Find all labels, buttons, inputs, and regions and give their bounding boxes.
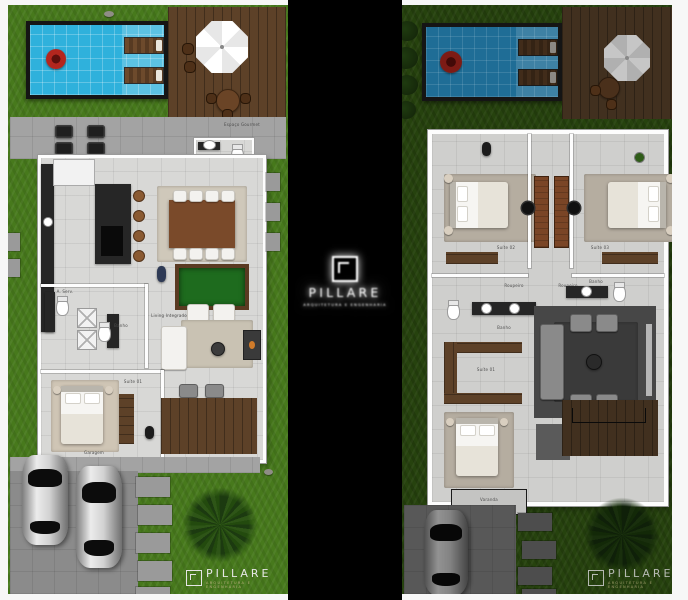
deck-armchair (205, 384, 224, 398)
driveway-paver (518, 567, 552, 585)
office-chair (568, 202, 580, 214)
room-label-banho: Banho (114, 324, 128, 329)
nightstand (666, 174, 672, 183)
room-label-suite2: Suíte 02 (497, 246, 515, 251)
car-shaded (424, 510, 468, 594)
room-label-banho-l: Banho (497, 326, 511, 331)
bed-pillow (648, 206, 659, 222)
garden-rock (264, 469, 273, 475)
toilet (614, 286, 625, 301)
driveway-paver (136, 533, 170, 553)
bush (402, 101, 416, 119)
toilet (57, 300, 68, 315)
suite2-bench (446, 252, 498, 264)
house-interior: Living Integrado A. Serv. Banho (38, 155, 266, 463)
dining-chair (189, 248, 203, 260)
person-figure (145, 426, 154, 439)
island-stool (133, 190, 145, 202)
interior-wall (41, 284, 147, 287)
kitchen-sink (44, 218, 52, 226)
office-chair (522, 202, 534, 214)
dining-chair (173, 248, 187, 260)
interior-wall (145, 284, 148, 368)
tv-panel (646, 324, 652, 396)
person-figure (157, 266, 166, 282)
bed-headboard (660, 182, 666, 228)
interior-wall (528, 134, 531, 268)
pillare-tagline: ARQUITETURA E ENGENHARIA (608, 581, 672, 589)
pillare-logo-icon (588, 570, 604, 586)
deck-chair (184, 61, 196, 73)
tv-armchair (570, 314, 592, 332)
sun-lounger (518, 39, 558, 56)
pool-water (30, 25, 164, 95)
laundry-counter (45, 292, 55, 332)
dining-chair (205, 248, 219, 260)
driveway-paver (518, 513, 552, 531)
toilet (99, 326, 110, 341)
deck-armchair (179, 384, 198, 398)
suite3-bed (608, 182, 666, 228)
room-label-living: Living Integrado (151, 314, 187, 319)
lounge-chair (87, 142, 105, 155)
lavabo-sink (204, 141, 215, 149)
toilet (448, 304, 459, 319)
nightstand (105, 386, 113, 394)
driveway-paver (522, 541, 556, 559)
pillare-logo-icon (186, 570, 202, 586)
bush (402, 47, 418, 69)
ground-floor-plan: Espaço Gourmet Lavabo (8, 5, 288, 594)
potted-plant (634, 152, 645, 163)
car-silver (22, 455, 68, 545)
rear-wood-deck (161, 398, 257, 454)
room-label-aserv: A. Serv. (57, 290, 74, 295)
deck-chair (182, 43, 194, 55)
stepping-pad (8, 259, 20, 277)
person-figure (482, 142, 491, 156)
nightstand (666, 226, 672, 235)
driveway-paver (138, 561, 172, 581)
driveway-paver (138, 505, 172, 525)
bush (402, 21, 418, 41)
pillare-logo: PILLARE ARQUITETURA E ENGENHARIA (186, 567, 288, 589)
island-stool (133, 230, 145, 242)
patio-umbrella (196, 21, 248, 73)
dining-chair (221, 248, 235, 260)
pool-water (426, 27, 558, 97)
bed-headboard (61, 386, 103, 392)
island-stool (133, 250, 145, 262)
pool-deck (562, 7, 672, 119)
pool-float (440, 51, 462, 73)
billiard-table (175, 264, 249, 310)
room-label-garagem: Garagem (84, 451, 104, 456)
suite3-bench (602, 252, 658, 264)
dining-chair (221, 190, 235, 202)
driveway-paver (136, 587, 170, 594)
kitchen-island (95, 184, 131, 264)
car-white (76, 466, 122, 568)
lounge-chair (87, 125, 105, 138)
bush (402, 75, 418, 95)
room-label-suite1: Suíte 01 (124, 380, 142, 385)
pillare-brand: PILLARE (608, 567, 672, 580)
stepping-pad (266, 233, 280, 251)
stepping-pad (266, 203, 280, 221)
upper-floor-plan: Suíte 02 Suíte 03 Roupeiro Roupeiro (402, 5, 672, 594)
interior-wall (432, 274, 528, 277)
pool-float (46, 49, 66, 69)
patio-chair (606, 99, 617, 110)
shower-stall (77, 308, 97, 328)
room-label-varanda: Varanda (480, 498, 498, 503)
driveway-paver (522, 589, 556, 594)
dining-chair (173, 190, 187, 202)
room-label-suite3: Suíte 03 (591, 246, 609, 251)
bed-pillow (457, 206, 468, 222)
pillare-watermark-brand: PILLARE (309, 285, 382, 300)
floorplan-render: Espaço Gourmet Lavabo (0, 0, 688, 600)
fireplace (243, 330, 261, 360)
interior-wall (41, 370, 163, 373)
stepping-pad (8, 233, 20, 251)
lounge-chair (55, 142, 73, 155)
lounge-chair (55, 125, 73, 138)
pillare-logo: PILLARE ARQUITETURA E ENGENHARIA (588, 567, 672, 589)
bed-headboard (450, 182, 456, 228)
bed-pillow (648, 186, 659, 202)
tv-armchair (596, 314, 618, 332)
side-table (586, 354, 602, 370)
pillare-watermark: PILLARE ARQUITETURA E ENGENHARIA (302, 256, 388, 307)
sun-lounger (124, 67, 164, 84)
patio-chair (240, 93, 251, 104)
pool-ledge (516, 27, 558, 97)
patio-chair (590, 85, 601, 96)
pillare-watermark-icon (332, 256, 358, 282)
pool-frame (26, 21, 168, 99)
patio-table (598, 77, 620, 99)
interior-wall (570, 134, 573, 268)
nightstand (446, 418, 454, 426)
pillare-watermark-tagline: ARQUITETURA E ENGENHARIA (303, 302, 386, 307)
nightstand (500, 418, 508, 426)
sun-lounger (518, 69, 558, 86)
dining-chair (189, 190, 203, 202)
room-label-closet: Suíte 01 (477, 368, 495, 373)
kitchen-cabinet (54, 160, 94, 185)
pillare-tagline: ARQUITETURA E ENGENHARIA (206, 581, 288, 589)
pool-ledge (122, 25, 164, 95)
interior-wall (572, 274, 664, 277)
island-stool (133, 210, 145, 222)
bed-pillow (479, 425, 495, 436)
pool-frame (422, 23, 562, 101)
suite2-bed (450, 182, 508, 228)
bed-pillow (84, 393, 100, 404)
dining-chair (205, 190, 219, 202)
nightstand (444, 174, 453, 183)
cooktop (101, 226, 123, 256)
suite1-bench (119, 394, 134, 444)
bed-pillow (457, 186, 468, 202)
bed-headboard (456, 418, 498, 424)
vanity-sink (510, 304, 519, 313)
driveway-paver (136, 477, 170, 497)
suite1-upper-bed (456, 418, 498, 476)
sofa (161, 326, 187, 370)
vanity-sink (482, 304, 491, 313)
room-label-banho-r: Banho (589, 280, 603, 285)
stair-railing (572, 408, 646, 423)
bed-pillow (460, 425, 476, 436)
upper-floor-interior: Suíte 02 Suíte 03 Roupeiro Roupeiro (428, 130, 668, 506)
dining-table (169, 200, 235, 248)
coffee-table (211, 342, 225, 356)
nightstand (444, 226, 453, 235)
nightstand (53, 386, 61, 394)
pool-deck (168, 7, 286, 119)
stepping-pad (266, 173, 280, 191)
tv-sofa (540, 324, 564, 400)
sun-lounger (124, 37, 164, 54)
room-label-gourmet: Espaço Gourmet (224, 123, 260, 128)
garden-rock (104, 11, 114, 17)
palm-tree (168, 473, 272, 577)
patio-chair (206, 93, 217, 104)
closet-shelf (444, 393, 522, 404)
suite1-bed (61, 386, 103, 444)
patio-umbrella (604, 35, 650, 81)
pergola-roof (562, 400, 658, 456)
vanity-sink (582, 287, 591, 296)
office-desk (534, 176, 549, 248)
pillare-brand: PILLARE (206, 567, 288, 580)
shower-stall (77, 330, 97, 350)
room-label-roupeiro-l: Roupeiro (504, 284, 523, 289)
bed-pillow (65, 393, 81, 404)
office-desk (554, 176, 569, 248)
